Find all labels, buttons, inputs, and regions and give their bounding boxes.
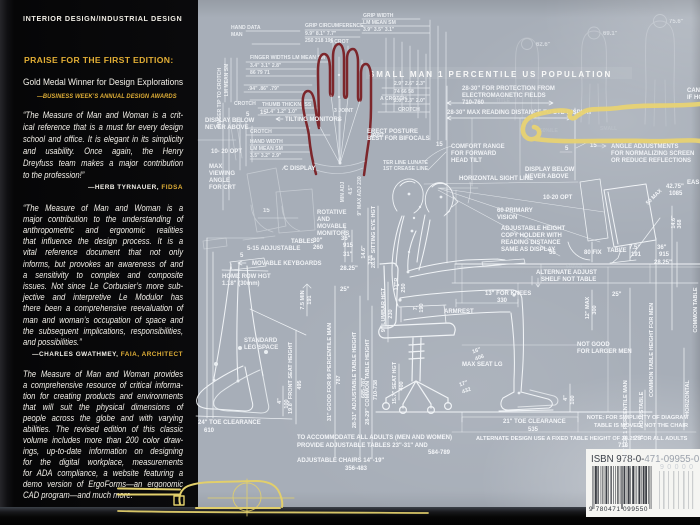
svg-text:COPY HOLDER WITH: COPY HOLDER WITH [501,233,562,239]
svg-text:400: 400 [399,381,405,390]
svg-text:NEVER ABOVE: NEVER ABOVE [205,125,248,131]
svg-text:28.25": 28.25" [340,266,358,272]
svg-text:LM MEAN SM: LM MEAN SM [363,20,396,26]
svg-text:191: 191 [307,295,313,304]
svg-text:GRIP WIDTH: GRIP WIDTH [363,13,394,19]
svg-text:330: 330 [497,298,508,304]
svg-text:80 FIX: 80 FIX [584,250,602,256]
svg-text:535: 535 [528,427,539,433]
svg-text:28.25": 28.25" [654,260,672,266]
svg-text:25": 25" [612,292,622,298]
svg-text:15: 15 [260,110,267,116]
svg-text:IF HO: IF HO [687,95,700,101]
svg-text:FOR CRT: FOR CRT [209,185,236,191]
svg-text:15: 15 [263,208,270,214]
svg-text:LM MEAN SM: LM MEAN SM [224,64,230,97]
svg-text:10-20 OPT: 10-20 OPT [543,195,573,201]
svg-text:AND: AND [317,217,331,223]
svg-text:TILTING MONITORS: TILTING MONITORS [285,117,342,123]
svg-text:NOTE: FOR SIMPLICITY OF DIAGRA: NOTE: FOR SIMPLICITY OF DIAGRAM [587,415,689,421]
svg-text:3 JOINT: 3 JOINT [334,108,354,114]
svg-text:3.9" 3.5" 3.1": 3.9" 3.5" 3.1" [363,27,395,33]
svg-text:1085: 1085 [669,191,683,197]
svg-text:356-483: 356-483 [345,466,368,472]
svg-text:ADJUSTABLE HEIGHT: ADJUSTABLE HEIGHT [501,226,566,232]
svg-text:CROTCH: CROTCH [398,107,420,113]
svg-text:12" MAX: 12" MAX [585,296,591,319]
svg-text:COMMON TABLE HEIGHT FOR MEN: COMMON TABLE HEIGHT FOR MEN [649,303,655,397]
svg-text:28-31" ADJUSTABLE TABLE HEIGHT: 28-31" ADJUSTABLE TABLE HEIGHT [352,331,358,428]
svg-text:432: 432 [461,387,472,396]
svg-text:15.7" SEAT HGT: 15.7" SEAT HGT [392,361,398,404]
svg-text:190: 190 [419,303,425,312]
svg-text:DISPLAY BELOW: DISPLAY BELOW [205,118,255,124]
svg-text:READING DISTANCE: READING DISTANCE [501,240,561,246]
svg-text:31" GOOD FOR 99 PERCENTILE MAN: 31" GOOD FOR 99 PERCENTILE MAN [327,323,333,421]
svg-text:HAND WIDTH: HAND WIDTH [250,139,283,145]
svg-text:787: 787 [336,375,342,384]
svg-text:CANT: CANT [687,88,700,94]
svg-text:CROTCH: CROTCH [250,129,272,135]
svg-text:14.6": 14.6" [361,245,367,259]
svg-text:1.18" (30mm): 1.18" (30mm) [222,281,260,287]
svg-text:17"R: 17"R [394,278,400,291]
svg-text:HEAD TILT: HEAD TILT [451,158,482,164]
svg-text:NOT GOOD: NOT GOOD [577,342,610,348]
svg-text:10- 20 OPT: 10- 20 OPT [211,149,242,155]
svg-text:SMALL: SMALL [600,126,617,132]
svg-text:3.5" 3.2" 2.9": 3.5" 3.2" 2.9" [250,153,282,159]
svg-text:TO ACCOMMODATE ALL ADULTS (MEN: TO ACCOMMODATE ALL ADULTS (MEN AND WOMEN… [297,435,452,441]
svg-text:MAX SEAT LG: MAX SEAT LG [462,362,503,368]
svg-text:25": 25" [340,287,350,293]
svg-text:915: 915 [659,252,670,258]
svg-text:710-760: 710-760 [462,100,485,106]
svg-text:500%A: 500%A [566,264,583,270]
svg-text:1.4" 1.2" 1.0": 1.4" 1.2" 1.0" [266,109,298,115]
svg-text:MIN ADJ: MIN ADJ [340,181,346,202]
svg-text:ERECT POSTURE: ERECT POSTURE [367,129,418,135]
svg-text:9.9" 8.1" 7.7": 9.9" 8.1" 7.7" [305,31,337,37]
svg-text:86 79 71: 86 79 71 [250,70,270,76]
svg-text:.94" .86" .79": .94" .86" .79" [248,86,280,92]
svg-text:FINGER WIDTHS LM MEAN SM: FINGER WIDTHS LM MEAN SM [250,55,325,61]
svg-text:100: 100 [570,395,576,404]
svg-text:HAND DATA: HAND DATA [231,25,261,31]
svg-text:28-29" COMMON TABLE HEIGHT: 28-29" COMMON TABLE HEIGHT [365,339,371,425]
svg-text:MAN: MAN [231,32,243,38]
svg-text:191: 191 [631,252,642,258]
svg-text:7.5 MIN: 7.5 MIN [300,290,306,309]
svg-text:13" FOR KNEES: 13" FOR KNEES [485,291,531,297]
svg-text:5: 5 [240,253,244,259]
svg-text:STANDARD: STANDARD [244,338,278,344]
svg-text:368: 368 [677,219,683,228]
svg-text:300: 300 [592,305,598,314]
svg-text:ANGLE: ANGLE [209,178,230,184]
svg-text:ANGLE ADJUSTMENTS: ANGLE ADJUSTMENTS [611,144,678,150]
svg-text:MOVABLE KEYBOARDS: MOVABLE KEYBOARDS [252,261,322,267]
svg-text:ADJUSTABLE CHAIRS 14"-19": ADJUSTABLE CHAIRS 14"-19" [297,458,384,464]
svg-text:15: 15 [436,142,443,148]
svg-text:36": 36" [341,236,351,242]
svg-text:4.5": 4.5" [348,185,354,195]
svg-text:50%ILE: 50%ILE [540,128,558,134]
svg-text:FOR NORMALIZING SCREEN: FOR NORMALIZING SCREEN [611,151,694,157]
svg-text:495: 495 [297,380,303,389]
svg-text:5: 5 [565,146,569,152]
svg-text:9" LUMBAR HGT: 9" LUMBAR HGT [381,287,387,332]
svg-text:9" MAX ADJ 230: 9" MAX ADJ 230 [357,176,363,215]
svg-text:370: 370 [368,255,374,264]
svg-text:1ST CREASE LINE: 1ST CREASE LINE [383,166,429,172]
svg-text:62.6": 62.6" [536,42,551,48]
svg-text:TITLE: TITLE [496,98,511,104]
svg-text:HORIZONTAL: HORIZONTAL [685,380,691,416]
svg-text:55: 55 [549,250,556,256]
svg-text:COMFORT RANGE: COMFORT RANGE [451,144,505,150]
svg-text:710-738: 710-738 [373,380,379,400]
svg-text:TABLES: TABLES [291,239,315,245]
svg-text:OPT FOR 1 PERCENTILE MAN: OPT FOR 1 PERCENTILE MAN [623,380,629,459]
svg-text:ALTERNATE DESIGN USE A FIXED T: ALTERNATE DESIGN USE A FIXED TABLE HEIGH… [476,436,688,442]
svg-text:7.5": 7.5" [629,245,640,251]
svg-text:28": 28" [634,436,644,442]
svg-text:MOVABLE: MOVABLE [317,224,347,230]
svg-text:69.1": 69.1" [603,31,618,37]
svg-text:SHELF NOT TABLE: SHELF NOT TABLE [541,277,596,283]
svg-text:74 66 58: 74 66 58 [394,89,414,95]
svg-text:LEG SPACE: LEG SPACE [244,345,278,351]
svg-text:75.6": 75.6" [669,19,684,25]
svg-text:CROTCH: CROTCH [234,101,256,107]
svg-text:SMALL MAN 1 PERCENTILE US POPU: SMALL MAN 1 PERCENTILE US POPULATION [369,70,612,79]
svg-text:584-789: 584-789 [428,450,451,456]
svg-text:ROTATIVE: ROTATIVE [317,210,346,216]
svg-text:VISION: VISION [497,215,517,221]
svg-text:31": 31" [343,252,353,258]
svg-text:2.9" 2.6" 2.3": 2.9" 2.6" 2.3" [394,81,426,87]
svg-text:⁄C DISPLAY: ⁄C DISPLAY [281,166,315,172]
svg-text:5-15 ADJUSTABLE: 5-15 ADJUSTABLE [247,246,300,252]
svg-text:915: 915 [343,243,354,249]
svg-text:100: 100 [284,399,290,408]
svg-text:LM MEAN SM: LM MEAN SM [250,146,283,152]
svg-text:24" TOE CLEARANCE: 24" TOE CLEARANCE [198,420,261,426]
svg-text:OR REDUCE REFLECTIONS: OR REDUCE REFLECTIONS [611,158,691,164]
svg-text:COMMON TABLE: COMMON TABLE [693,287,699,332]
svg-text:610: 610 [204,428,215,434]
svg-text:GRIP CIRCUMFERENCE: GRIP CIRCUMFERENCE [305,23,364,29]
svg-text:BEST FOR BIFOCALS: BEST FOR BIFOCALS [367,136,430,142]
svg-text:60 PRIMARY: 60 PRIMARY [497,208,533,214]
svg-text:TABLE: TABLE [607,248,627,254]
svg-text:230: 230 [388,309,394,318]
svg-text:EAS: EAS [687,180,699,186]
svg-text:42.75": 42.75" [666,184,684,190]
svg-text:SAME AS DISPLAY: SAME AS DISPLAY [501,247,555,253]
svg-text:260: 260 [313,245,324,251]
svg-text:28-30" FOR PROTECTION FROM: 28-30" FOR PROTECTION FROM [462,86,555,92]
svg-text:36": 36" [657,245,667,251]
svg-text:4": 4" [277,398,283,404]
svg-text:A CROTCH: A CROTCH [380,96,407,102]
svg-text:4": 4" [563,395,569,401]
svg-text:ADJUSTABLE: ADJUSTABLE [639,391,645,428]
svg-text:FOR FORWARD: FOR FORWARD [451,151,497,157]
svg-text:VIEWING: VIEWING [209,171,235,177]
svg-text:PROVIDE ADJUSTABLE TABLES 23"-: PROVIDE ADJUSTABLE TABLES 23"-31" AND [297,443,428,449]
svg-text:250: 250 [401,283,407,292]
svg-text:21" TOE CLEARANCE: 21" TOE CLEARANCE [503,419,566,425]
svg-text:3.4" 3.1" 2.8": 3.4" 3.1" 2.8" [250,63,282,69]
svg-text:HORIZONTAL SIGHT LINE: HORIZONTAL SIGHT LINE [459,176,533,182]
svg-text:MAX: MAX [209,164,222,170]
svg-text:DISPLAY BELOW: DISPLAY BELOW [525,167,575,173]
svg-text:ALTERNATE ADJUST: ALTERNATE ADJUST [536,270,597,276]
svg-text:ARMREST: ARMREST [444,309,474,315]
svg-text:HOME ROW HGT: HOME ROW HGT [222,274,271,280]
svg-text:FOR LARGER MEN: FOR LARGER MEN [577,349,632,355]
